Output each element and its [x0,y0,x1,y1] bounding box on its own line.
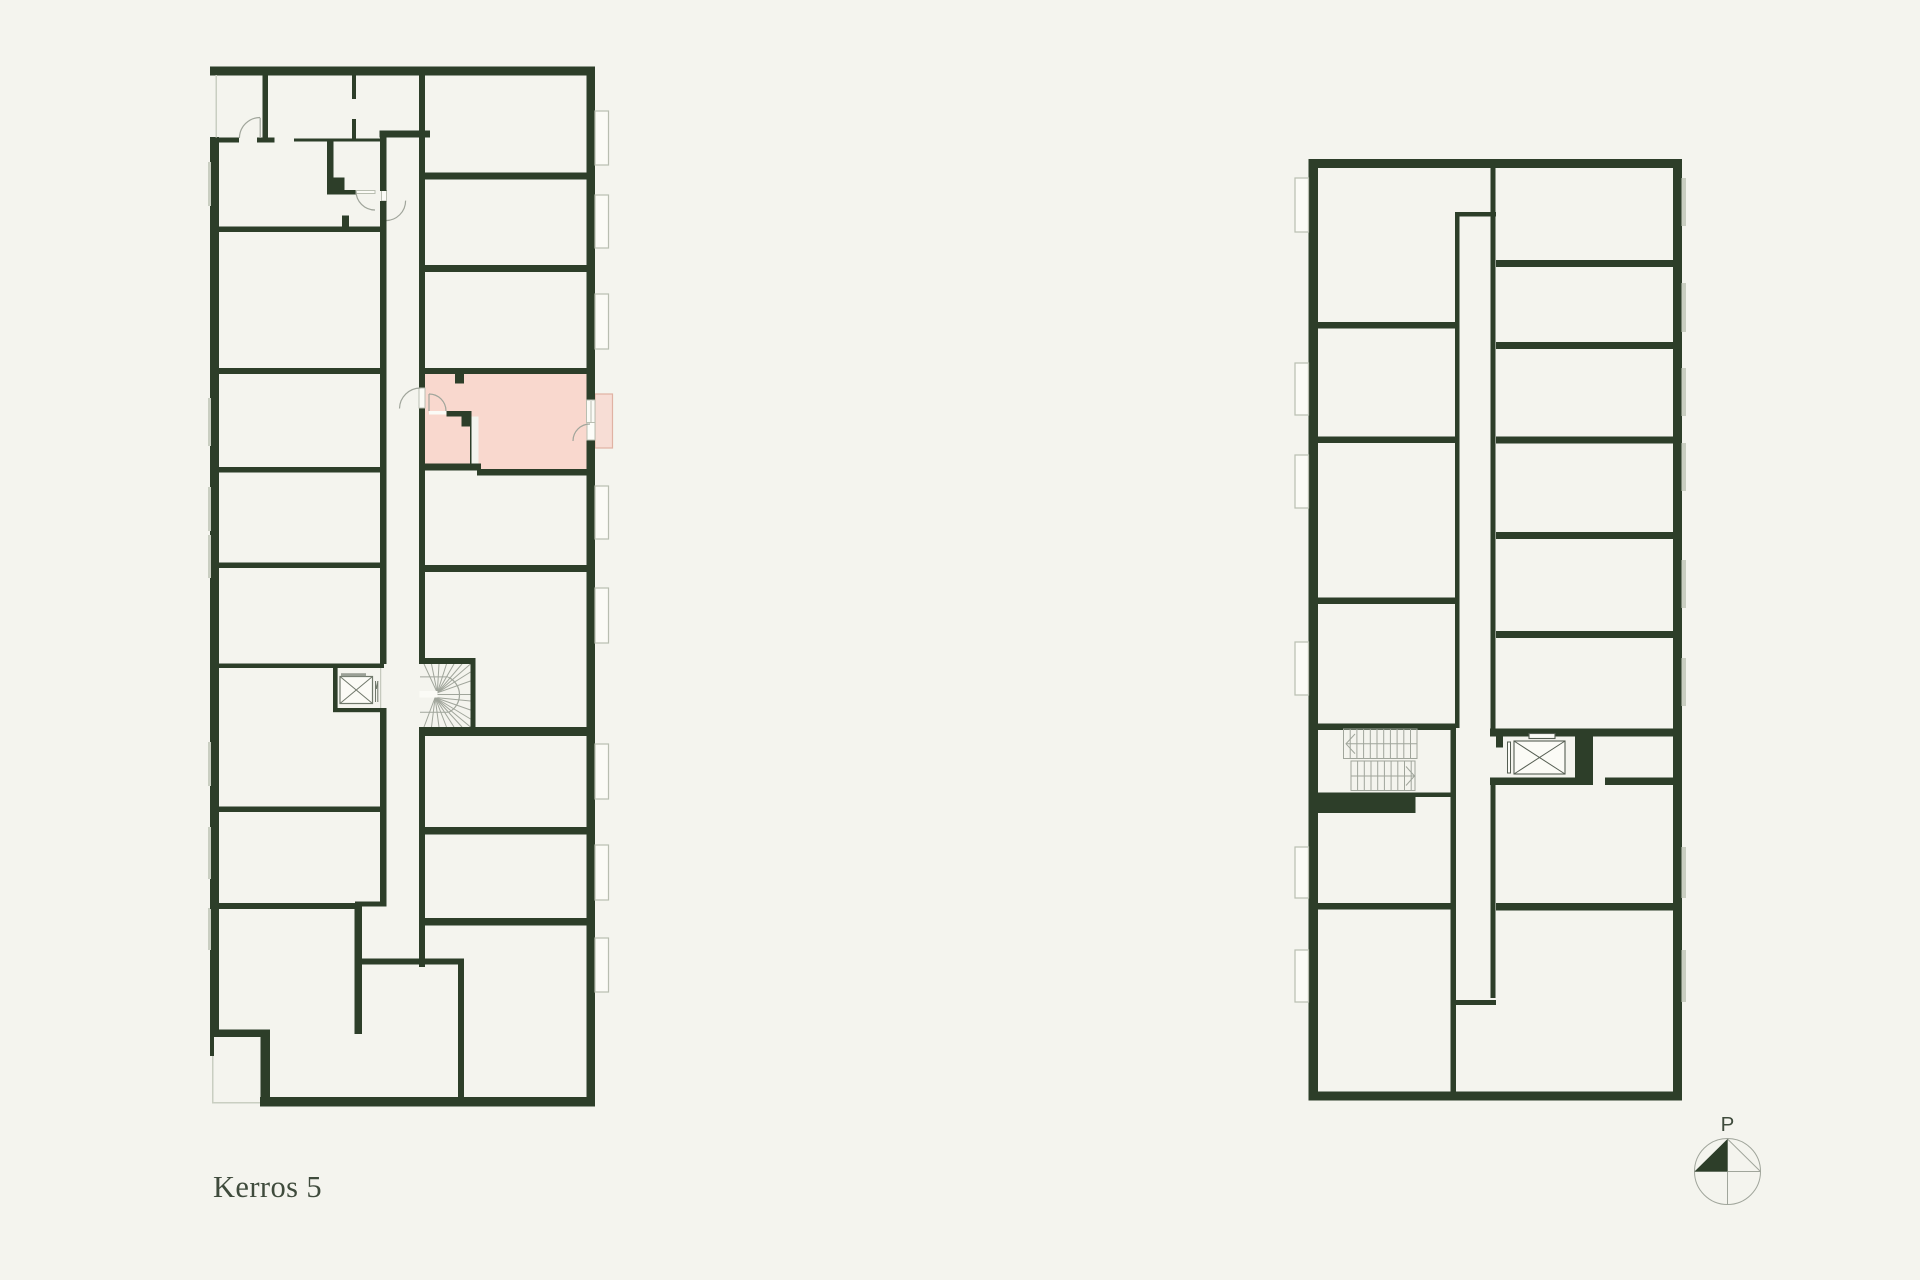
svg-text:P: P [1721,1113,1735,1136]
svg-text:Kerros 5: Kerros 5 [213,1170,322,1204]
